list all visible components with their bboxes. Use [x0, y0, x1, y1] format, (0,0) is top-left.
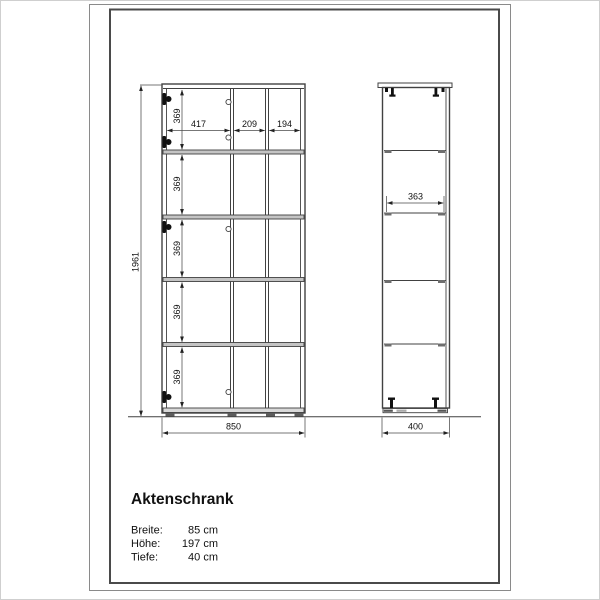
peg-icon — [433, 95, 439, 97]
product-dimension-sheet: 1961 369 369 369 369 369 417 209 194 850 — [0, 0, 600, 600]
dim-label-shelf-depth: 363 — [408, 192, 423, 202]
spec-table: Breite: 85 cm Höhe: 197 cm Tiefe: 40 cm — [131, 525, 218, 564]
dim-label-row3: 369 — [172, 241, 182, 256]
peg-icon — [390, 400, 393, 409]
plinth-mark — [438, 410, 447, 412]
spec-value-width: 85 cm — [188, 525, 218, 537]
peg-icon — [389, 95, 395, 97]
dim-label-row2: 369 — [172, 176, 182, 191]
peg-icon — [388, 398, 395, 400]
dim-label-row4: 369 — [172, 304, 182, 319]
technical-drawing: 1961 369 369 369 369 369 417 209 194 850 — [0, 0, 600, 600]
dim-label-row1: 369 — [172, 108, 182, 123]
peg-icon — [385, 88, 388, 92]
product-title: Aktenschrank — [131, 491, 234, 508]
dim-label-col1: 417 — [191, 119, 206, 129]
plinth-mark — [384, 410, 393, 412]
handle-icon — [226, 135, 231, 140]
spec-label-width: Breite: — [131, 525, 163, 537]
foot — [295, 413, 304, 417]
peg-icon — [442, 88, 445, 92]
dim-label-total-height: 1961 — [131, 252, 141, 272]
peg-icon — [432, 398, 439, 400]
front-bottom-panel — [163, 408, 304, 413]
handle-icon — [226, 226, 231, 231]
plinth-mark — [397, 410, 407, 412]
dim-label-total-depth: 400 — [408, 422, 423, 432]
peg-icon — [434, 400, 437, 409]
front-shelf-2 — [163, 215, 304, 219]
dim-label-row5: 369 — [172, 369, 182, 384]
handle-icon — [226, 99, 231, 104]
foot — [228, 413, 237, 417]
dim-label-total-width: 850 — [226, 422, 241, 432]
foot — [166, 413, 175, 417]
side-cabinet-outline — [383, 88, 450, 409]
front-shelf-3 — [163, 278, 304, 282]
handle-icon — [226, 389, 231, 394]
spec-label-height: Höhe: — [131, 538, 160, 550]
spec-value-depth: 40 cm — [188, 552, 218, 564]
spec-value-height: 197 cm — [182, 538, 218, 550]
front-view — [162, 84, 305, 417]
foot — [266, 413, 275, 417]
front-shelf-1 — [163, 150, 304, 154]
side-view — [378, 83, 452, 413]
dim-label-col2: 209 — [242, 119, 257, 129]
spec-label-depth: Tiefe: — [131, 552, 158, 564]
front-shelf-4 — [163, 343, 304, 347]
dim-label-col3: 194 — [277, 119, 292, 129]
